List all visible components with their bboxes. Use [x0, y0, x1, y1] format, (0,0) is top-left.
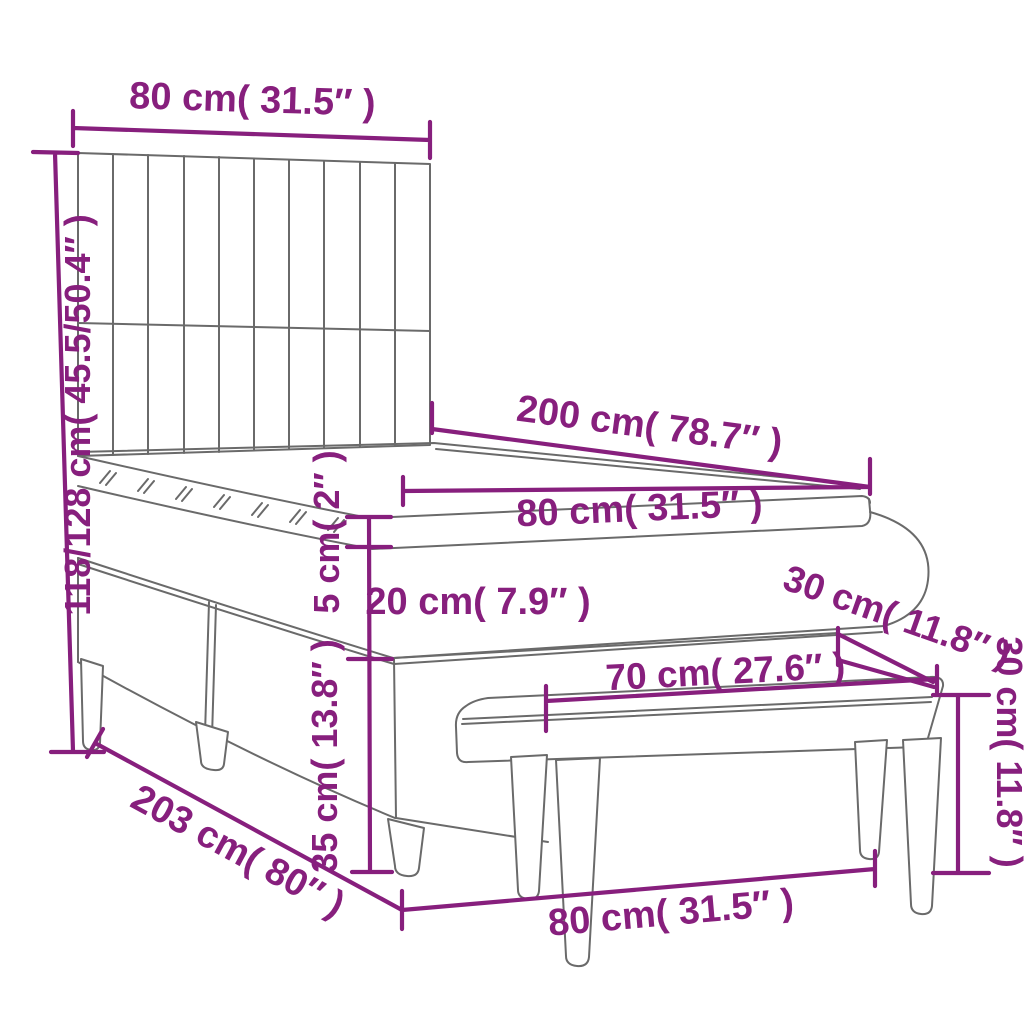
- base-front-corner-edge: [394, 658, 396, 818]
- dim-line: [87, 729, 402, 910]
- dimension-diagram: 80 cm( 31.5″ ) 118/128 cm( 45.5/50.4″ ) …: [0, 0, 1024, 1024]
- dim-mattress-width: 80 cm( 31.5″ ): [403, 477, 868, 535]
- headboard: [78, 153, 430, 456]
- dim-height-stack-line: [347, 517, 392, 872]
- topper-back-seam: [436, 449, 860, 489]
- bench-leg-back-right: [855, 740, 887, 859]
- dim-line: [933, 695, 989, 873]
- dim-label: 30 cm( 11.8″ ): [989, 636, 1024, 867]
- bed-leg-middle: [196, 722, 228, 770]
- bed-leg-front-right: [388, 819, 424, 876]
- dim-label-topper-thickness: 5 cm( 2″ ): [306, 450, 347, 613]
- bench-leg-front-right: [903, 738, 941, 914]
- dim-bed-length: 200 cm( 78.7″ ): [432, 388, 870, 494]
- bench-leg-back-left: [511, 755, 547, 899]
- dim-label-base-height: 35 cm( 13.8″ ): [304, 639, 345, 872]
- dim-headboard-width: 80 cm( 31.5″ ): [73, 75, 430, 158]
- dim-label: 80 cm( 31.5″ ): [129, 75, 377, 125]
- dim-label: 200 cm( 78.7″ ): [514, 388, 785, 465]
- bed: [78, 153, 929, 876]
- dim-bed-floor-length: 203 cm( 80″ ): [87, 729, 402, 926]
- base-front-bottom-edge: [78, 662, 395, 818]
- dim-label: 118/128 cm( 45.5/50.4″ ): [57, 214, 98, 616]
- dim-bench-length: 80 cm( 31.5″ ): [402, 851, 875, 945]
- base-middle-seam: [205, 602, 216, 737]
- dim-label-mattress-thickness: 20 cm( 7.9″ ): [365, 581, 590, 623]
- dim-bench-height: 30 cm( 11.8″ ): [933, 636, 1024, 873]
- headboard-slat-lines: [113, 154, 395, 455]
- diagram-canvas: 80 cm( 31.5″ ) 118/128 cm( 45.5/50.4″ ) …: [0, 0, 1024, 1024]
